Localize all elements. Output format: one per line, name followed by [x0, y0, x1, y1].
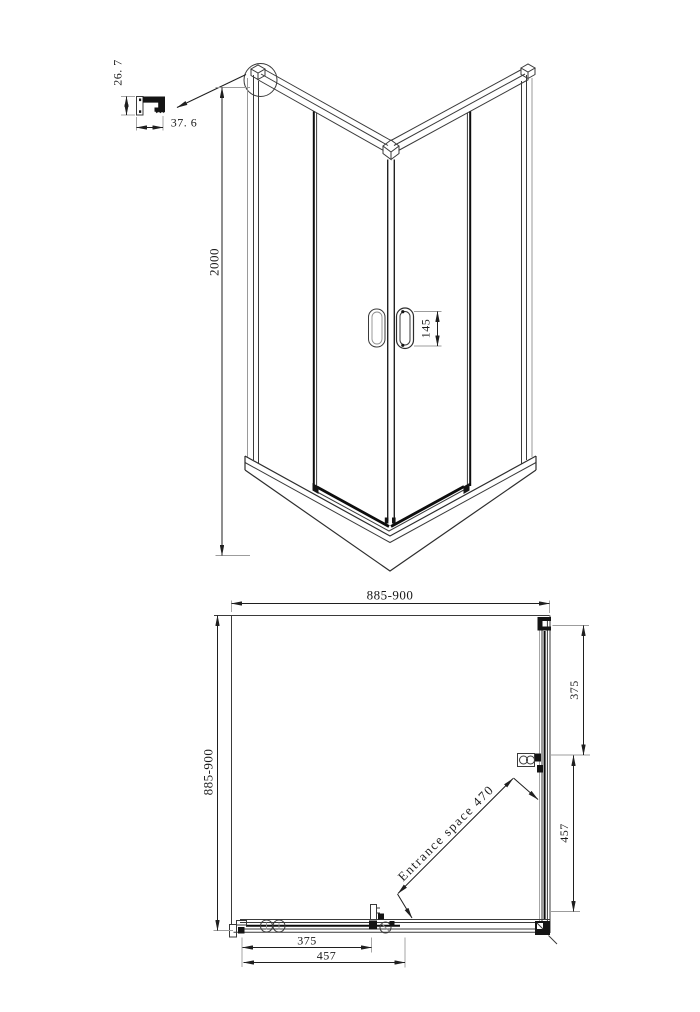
technical-drawing-page: 26. 7 37. 6: [0, 0, 700, 1012]
right-door-handle: [397, 308, 414, 349]
plan-right-457-dimension: 457: [551, 756, 580, 912]
height-dimension: 2000: [207, 88, 251, 556]
top-corner-caps: [251, 64, 535, 160]
plan-bottom-375-label: 375: [297, 934, 317, 948]
profile-cross-section-detail: 26. 7 37. 6: [111, 59, 198, 130]
plan-right-375-label: 375: [567, 680, 581, 700]
plan-depth-dimension: 885-900: [201, 616, 234, 931]
detail-leader-arrow: [177, 75, 246, 108]
profile-width-dim-label: 37. 6: [171, 116, 198, 130]
height-dim-label: 2000: [207, 248, 222, 276]
handle-dimension: 145: [414, 312, 442, 347]
glass-panels: [248, 75, 533, 523]
plan-width-dimension: 885-900: [232, 588, 550, 614]
isometric-view: 145 2000: [177, 64, 536, 572]
plan-right-rail: [540, 616, 551, 934]
door-handles: [369, 308, 414, 349]
plan-right-457-label: 457: [557, 823, 571, 843]
shower-enclosure-drawing: 26. 7 37. 6: [0, 0, 700, 1012]
plan-bottom-375-dimension: 375: [242, 934, 372, 968]
bottom-rails: [313, 483, 470, 531]
handle-dim-label: 145: [419, 319, 433, 339]
top-rails: [258, 70, 529, 151]
left-door-handle: [369, 309, 386, 347]
plan-bottom-457-dimension: 457: [244, 938, 406, 968]
plan-top-right-bracket: [538, 617, 552, 631]
plan-bottom-right-bracket: [535, 921, 557, 944]
entrance-space-label: Entrance space 470: [395, 782, 497, 884]
plan-view: 885-900 885-900 375 457 375: [201, 588, 591, 968]
plan-width-label: 885-900: [367, 588, 414, 603]
profile-height-dim-label: 26. 7: [111, 59, 125, 86]
entrance-space-dimension: Entrance space 470: [395, 778, 538, 918]
plan-depth-label: 885-900: [201, 749, 216, 796]
plan-bottom-457-label: 457: [317, 949, 337, 963]
plan-right-375-dimension: 375: [551, 626, 590, 756]
shower-tray: [245, 456, 536, 571]
